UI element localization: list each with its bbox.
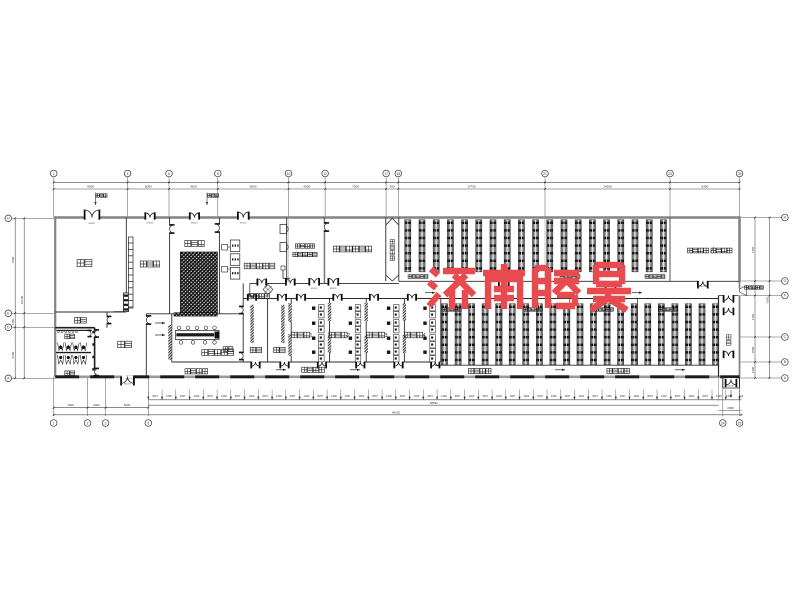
svg-text:21: 21 xyxy=(543,172,547,176)
svg-text:A: A xyxy=(7,377,10,381)
svg-text:1600: 1600 xyxy=(751,366,755,373)
svg-text:3: 3 xyxy=(385,333,388,339)
svg-text:1400: 1400 xyxy=(359,394,365,398)
svg-text:2067: 2067 xyxy=(152,394,158,398)
svg-text:6350: 6350 xyxy=(766,296,770,303)
svg-text:1: 1 xyxy=(310,333,313,339)
svg-text:1400: 1400 xyxy=(578,394,584,398)
svg-text:25: 25 xyxy=(738,421,742,425)
svg-text:1400: 1400 xyxy=(414,394,420,398)
svg-text:4200: 4200 xyxy=(190,185,197,189)
svg-text:1400: 1400 xyxy=(386,394,392,398)
svg-text:1400: 1400 xyxy=(221,394,227,398)
svg-text:2067: 2067 xyxy=(180,394,186,398)
svg-text:10: 10 xyxy=(287,172,291,176)
svg-text:1: 1 xyxy=(53,421,55,425)
svg-text:5000: 5000 xyxy=(145,185,152,189)
svg-text:1450: 1450 xyxy=(11,318,15,325)
svg-text:2067: 2067 xyxy=(262,394,268,398)
svg-text:2067: 2067 xyxy=(620,394,626,398)
svg-text:M1021: M1021 xyxy=(699,286,706,288)
svg-text:8000: 8000 xyxy=(250,185,257,189)
svg-text:M1021: M1021 xyxy=(728,386,735,388)
svg-text:7150: 7150 xyxy=(751,246,755,253)
svg-text:84192: 84192 xyxy=(392,410,400,414)
svg-text:4500: 4500 xyxy=(303,185,310,189)
svg-text:2067: 2067 xyxy=(537,394,543,398)
svg-text:1400: 1400 xyxy=(661,394,667,398)
svg-text:8300: 8300 xyxy=(701,185,708,189)
svg-text:2098: 2098 xyxy=(727,406,734,410)
svg-text:8: 8 xyxy=(217,172,219,176)
svg-text:2: 2 xyxy=(87,421,89,425)
svg-text:4150: 4150 xyxy=(751,313,755,320)
svg-text:2067: 2067 xyxy=(592,394,598,398)
svg-text:12: 12 xyxy=(323,172,327,176)
svg-text:2067: 2067 xyxy=(455,394,461,398)
svg-text:9600: 9600 xyxy=(87,185,94,189)
svg-text:950: 950 xyxy=(390,185,395,189)
svg-text:M1021: M1021 xyxy=(330,288,337,290)
svg-text:14600: 14600 xyxy=(603,185,612,189)
svg-text:M1021: M1021 xyxy=(191,223,198,225)
svg-text:1400: 1400 xyxy=(551,394,557,398)
svg-text:2067: 2067 xyxy=(510,394,516,398)
svg-text:2067: 2067 xyxy=(207,394,213,398)
svg-text:C: C xyxy=(784,335,787,339)
svg-text:1400: 1400 xyxy=(716,394,722,398)
svg-text:1400: 1400 xyxy=(606,394,612,398)
svg-text:2067: 2067 xyxy=(290,394,296,398)
svg-text:5: 5 xyxy=(147,421,149,425)
svg-text:18: 18 xyxy=(396,172,400,176)
svg-text:7500: 7500 xyxy=(352,185,359,189)
svg-text:68592: 68592 xyxy=(430,401,438,405)
svg-text:1400: 1400 xyxy=(441,394,447,398)
svg-text:1400: 1400 xyxy=(276,394,282,398)
svg-text:2067: 2067 xyxy=(400,394,406,398)
svg-text:2067: 2067 xyxy=(675,394,681,398)
svg-text:H: H xyxy=(784,216,787,220)
svg-text:2000: 2000 xyxy=(93,403,100,407)
svg-text:A: A xyxy=(784,376,787,380)
svg-text:2067: 2067 xyxy=(345,394,351,398)
svg-text:B: B xyxy=(784,360,787,364)
svg-text:2067: 2067 xyxy=(427,394,433,398)
svg-text:1400: 1400 xyxy=(688,394,694,398)
svg-text:23: 23 xyxy=(668,172,672,176)
svg-text:1: 1 xyxy=(53,172,55,176)
svg-text:25: 25 xyxy=(738,172,742,176)
svg-text:1400: 1400 xyxy=(194,394,200,398)
svg-text:1400: 1400 xyxy=(469,394,475,398)
svg-text:G: G xyxy=(784,279,787,283)
svg-text:2067: 2067 xyxy=(317,394,323,398)
svg-text:17: 17 xyxy=(384,172,388,176)
svg-text:4: 4 xyxy=(127,172,129,176)
svg-text:2067: 2067 xyxy=(702,394,708,398)
svg-text:1400: 1400 xyxy=(496,394,502,398)
svg-text:M1021: M1021 xyxy=(311,288,318,290)
svg-text:H: H xyxy=(7,217,10,221)
svg-text:1400: 1400 xyxy=(633,394,639,398)
svg-text:M1021: M1021 xyxy=(124,384,131,386)
svg-text:3: 3 xyxy=(105,421,107,425)
svg-text:4: 4 xyxy=(423,333,426,339)
svg-text:M1021: M1021 xyxy=(147,223,154,225)
svg-text:24: 24 xyxy=(721,421,725,425)
svg-text:E: E xyxy=(7,312,10,316)
svg-text:4300: 4300 xyxy=(67,403,74,407)
svg-text:442: 442 xyxy=(739,394,744,398)
svg-text:M1021: M1021 xyxy=(240,223,247,225)
svg-text:2067: 2067 xyxy=(482,394,488,398)
svg-text:1400: 1400 xyxy=(523,394,529,398)
svg-text:16100: 16100 xyxy=(20,295,24,304)
svg-text:2067: 2067 xyxy=(372,394,378,398)
svg-text:F: F xyxy=(784,294,786,298)
svg-text:2067: 2067 xyxy=(565,394,571,398)
svg-text:1400: 1400 xyxy=(304,394,310,398)
svg-text:5000: 5000 xyxy=(124,403,131,407)
svg-text:2067: 2067 xyxy=(235,394,241,398)
svg-text:1400: 1400 xyxy=(166,394,172,398)
svg-text:1400: 1400 xyxy=(249,394,255,398)
svg-text:2: 2 xyxy=(347,333,350,339)
svg-text:2067: 2067 xyxy=(647,394,653,398)
svg-text:17750: 17750 xyxy=(467,185,476,189)
svg-text:M1021: M1021 xyxy=(89,223,96,225)
svg-text:1400: 1400 xyxy=(331,394,337,398)
svg-text:D: D xyxy=(7,326,10,330)
svg-text:7200: 7200 xyxy=(11,256,15,263)
svg-text:5150: 5150 xyxy=(11,351,15,358)
svg-text:2500: 2500 xyxy=(751,346,755,353)
svg-text:6: 6 xyxy=(168,172,170,176)
